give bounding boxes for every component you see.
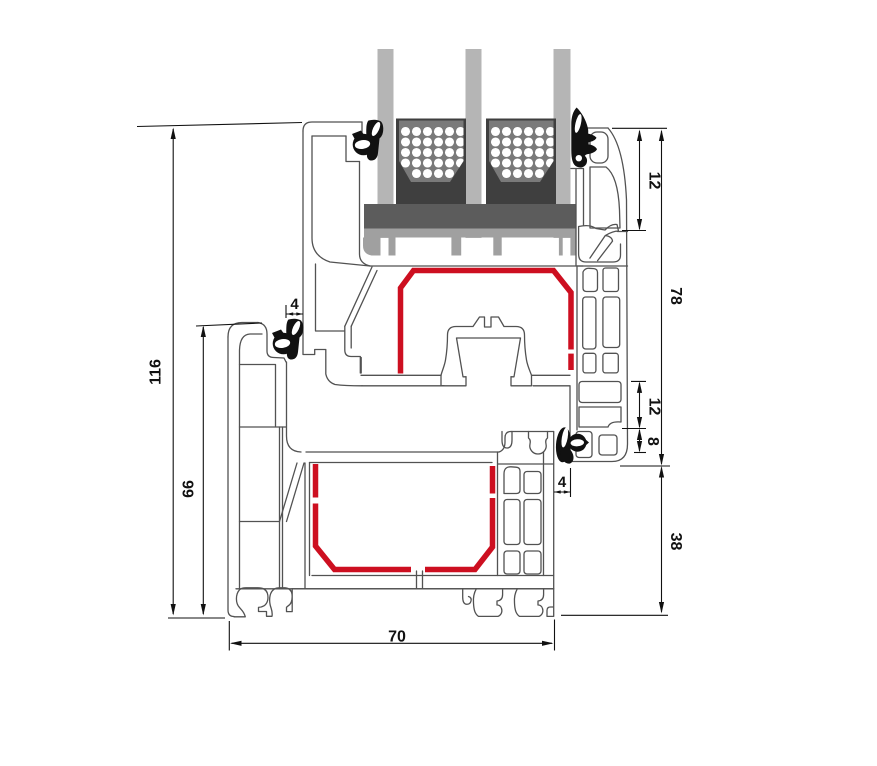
svg-text:66: 66 <box>181 480 198 498</box>
svg-text:4: 4 <box>290 296 299 313</box>
svg-text:12: 12 <box>646 172 663 190</box>
svg-text:70: 70 <box>388 628 406 645</box>
svg-text:8: 8 <box>644 437 661 446</box>
svg-text:12: 12 <box>646 398 663 416</box>
svg-text:4: 4 <box>558 474 567 491</box>
svg-text:38: 38 <box>667 533 684 551</box>
svg-text:116: 116 <box>148 359 165 385</box>
svg-text:78: 78 <box>667 287 684 305</box>
